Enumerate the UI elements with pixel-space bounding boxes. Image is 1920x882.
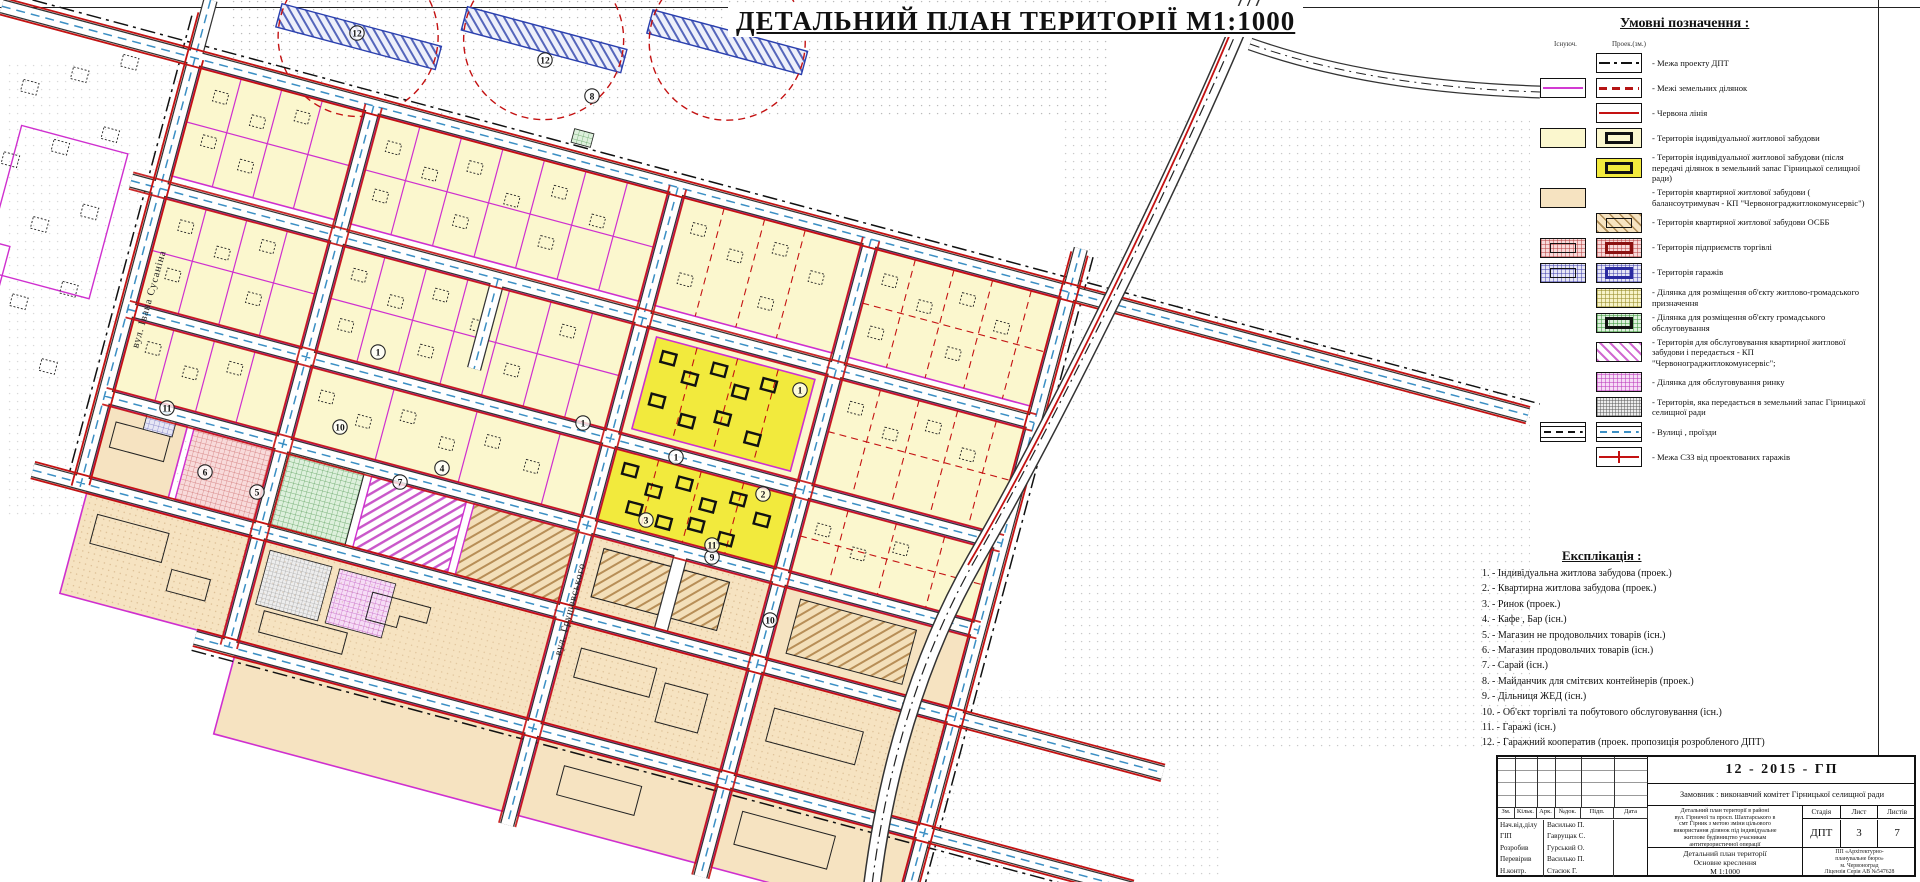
drawing-name: Детальний план території Основне креслен… — [1648, 848, 1803, 877]
title-block: Зм.Кільк.Арк.№док.Підп.Дата Нач.від.ділу… — [1496, 755, 1916, 877]
map-number-1: 1 — [371, 345, 385, 359]
legend-item-label: - Територія індивідуальної житлової забу… — [1652, 133, 1870, 144]
legend-item-label: - Територія гаражів — [1652, 267, 1870, 278]
legend-item-label: - Територія квартирної житлової забудови… — [1652, 217, 1870, 228]
svg-text:2: 2 — [761, 490, 766, 500]
svg-text:6: 6 — [203, 468, 208, 478]
legend-item: - Межі земельних ділянок — [1540, 77, 1878, 99]
project-description: Детальний план території в районі вул. Г… — [1648, 806, 1803, 847]
revision-col-2: Арк. — [1537, 808, 1555, 818]
legend-item: - Територія квартирної житлової забудови… — [1540, 212, 1878, 234]
svg-text:1: 1 — [674, 453, 679, 463]
explication-item: 8. - Майданчик для смітєвих контейнерів … — [1482, 674, 1902, 689]
legend-swatch-yellow — [1596, 128, 1642, 148]
explication-item: 3. - Ринок (проек.) — [1482, 597, 1902, 612]
legend-swatch-yellow — [1540, 128, 1586, 148]
legend-item: - Територія для обслуговування квартирно… — [1540, 337, 1878, 369]
legend-swatch-green-grid — [1596, 313, 1642, 333]
legend-item: - Ділянка для розміщення об'єкту житлово… — [1540, 287, 1878, 309]
revision-col-4: Підп. — [1581, 808, 1614, 818]
legend-item-label: - Територія квартирної житлової забудови… — [1652, 187, 1870, 208]
document-code: 12 - 2015 - ГП — [1648, 757, 1916, 784]
map-number-1: 1 — [576, 416, 590, 430]
svg-text:1: 1 — [581, 419, 586, 429]
legend-swatch-tan-hatch — [1596, 213, 1642, 233]
legend-item: - Вулиці , проїзди — [1540, 421, 1878, 443]
svg-text:1: 1 — [798, 386, 803, 396]
signature-role: Розробив — [1498, 843, 1544, 854]
svg-text:10: 10 — [765, 616, 775, 626]
map-number-1: 1 — [793, 383, 807, 397]
revision-col-5: Дата — [1614, 808, 1648, 818]
explication-item: 5. - Магазин не продовольчих товарів (іс… — [1482, 628, 1902, 643]
legend-swatch-line — [1596, 53, 1642, 73]
signature-name: Гаврущак С. — [1544, 831, 1614, 842]
legend-item: - Територія, яка передається в земельний… — [1540, 396, 1878, 418]
legend-item: - Територія індивідуальної житлової забу… — [1540, 152, 1878, 184]
legend-swatch-magenta-grid — [1596, 372, 1642, 392]
svg-text:7: 7 — [398, 478, 403, 488]
explication-item: 6. - Магазин продовольчих товарів (існ.) — [1482, 643, 1902, 658]
stage-sheet-cells: Стадія Лист Листів ДПТ 3 7 — [1803, 806, 1916, 847]
legend-col-projected: Проек.(зм.) — [1612, 40, 1646, 48]
legend-item-label: - Ділянка для розміщення об'єкту громадс… — [1652, 312, 1870, 333]
legend-swatch-line — [1540, 78, 1586, 98]
map-number-5: 5 — [250, 485, 264, 499]
map-area: .blk-y{fill:#FBF7CE;stroke:#cf2fcf;strok… — [0, 0, 1540, 882]
legend-item-label: - Територія, яка передається в земельний… — [1652, 397, 1870, 418]
map-number-12: 12 — [350, 26, 364, 40]
legend-item-label: - Територія індивідуальної житлової забу… — [1652, 152, 1870, 184]
legend-item: - Межа проекту ДПТ — [1540, 52, 1878, 74]
legend-items: - Межа проекту ДПТ- Межі земельних ділян… — [1540, 52, 1878, 471]
signature-role: Н.контр. — [1498, 866, 1544, 877]
title-block-main: 12 - 2015 - ГП Замовник : виконавчий ком… — [1648, 757, 1916, 875]
sheet-label: Лист — [1841, 806, 1879, 819]
map-number-4: 4 — [435, 461, 449, 475]
signature-row: ГІПГаврущак С. — [1498, 831, 1648, 842]
legend-swatch-blue-grid — [1596, 263, 1642, 283]
legend-item-label: - Межа СЗЗ від проектованих гаражів — [1652, 452, 1870, 463]
explication-heading: Експлікація : — [1562, 548, 1642, 564]
legend-col-existing: Існуюч. — [1554, 40, 1577, 48]
explication-item: 11. - Гаражі (існ.) — [1482, 720, 1902, 735]
signature-row: Н.контр.Стасюк Г. — [1498, 866, 1648, 877]
svg-text:1: 1 — [376, 348, 381, 358]
legend-swatch-road-ex — [1540, 422, 1586, 442]
legend-item: - Ділянка для обслуговування ринку — [1540, 371, 1878, 393]
explication-item: 1. - Індивідуальна житлова забудова (про… — [1482, 566, 1902, 581]
signature-name: Василько П. — [1544, 820, 1614, 831]
title-block-signatures: Зм.Кільк.Арк.№док.Підп.Дата Нач.від.ділу… — [1498, 757, 1648, 875]
sheets-label: Листів — [1878, 806, 1916, 819]
signature-role: Нач.від.ділу — [1498, 820, 1544, 831]
map-number-1: 1 — [669, 450, 683, 464]
svg-text:5: 5 — [255, 488, 260, 498]
legend-swatch-blue-grid — [1540, 263, 1586, 283]
explication-item: 12. - Гаражний кооператив (проек. пропоз… — [1482, 735, 1902, 750]
customer-line: Замовник : виконавчий комітет Гірницької… — [1648, 784, 1916, 806]
legend-swatch-pink-grid — [1596, 238, 1642, 258]
sheets-value: 7 — [1878, 820, 1916, 847]
signature-rows: Нач.від.ділуВасилько П.ГІПГаврущак С.Роз… — [1498, 820, 1648, 877]
explication-item: 4. - Кафе , Бар (існ.) — [1482, 612, 1902, 627]
map-number-10: 10 — [763, 613, 777, 627]
legend-item: - Ділянка для розміщення об'єкту громадс… — [1540, 312, 1878, 334]
legend-item: - Межа СЗЗ від проектованих гаражів — [1540, 446, 1878, 468]
plan-sheet: .blk-y{fill:#FBF7CE;stroke:#cf2fcf;strok… — [0, 0, 1920, 882]
legend-item: - Червона лінія — [1540, 102, 1878, 124]
sheet-frame-rightline — [1878, 0, 1879, 756]
svg-text:11: 11 — [163, 404, 172, 414]
legend-swatch-road-pr — [1596, 422, 1642, 442]
revision-col-3: №док. — [1555, 808, 1581, 818]
legend-swatch-gray-grid — [1596, 397, 1642, 417]
svg-text:11: 11 — [708, 541, 717, 551]
signature-row: РозробивГурський О. — [1498, 843, 1648, 854]
legend-swatch-line — [1596, 103, 1642, 123]
legend-swatch-purple-hatch — [1596, 342, 1642, 362]
revision-col-0: Зм. — [1498, 808, 1515, 818]
svg-text:12: 12 — [352, 29, 362, 39]
revision-grid — [1498, 757, 1648, 807]
explication-item: 9. - Дільниця ЖЕД (існ.) — [1482, 689, 1902, 704]
legend-swatch-bright-yellow — [1596, 158, 1642, 178]
legend-item-label: - Територія підприємств торгівлі — [1652, 242, 1870, 253]
signature-role: ГІП — [1498, 831, 1544, 842]
legend-swatch-line — [1596, 78, 1642, 98]
map-number-11: 11 — [705, 538, 719, 552]
legend-item-label: - Територія для обслуговування квартирно… — [1652, 337, 1870, 369]
explication-items: 1. - Індивідуальна житлова забудова (про… — [1482, 566, 1902, 751]
svg-text:8: 8 — [590, 92, 595, 102]
svg-text:9: 9 — [710, 553, 715, 563]
map-number-3: 3 — [639, 513, 653, 527]
legend-swatch-pink-grid — [1540, 238, 1586, 258]
sheet-value: 3 — [1841, 820, 1879, 847]
legend-item-label: - Межа проекту ДПТ — [1652, 58, 1870, 69]
legend-item-label: - Ділянка для розміщення об'єкту житлово… — [1652, 287, 1870, 308]
signature-name: Гурський О. — [1544, 843, 1614, 854]
svg-text:4: 4 — [440, 464, 445, 474]
legend-item-label: - Межі земельних ділянок — [1652, 83, 1870, 94]
organization-info: ПП «Архітектурно- планувальне бюро» м. Ч… — [1803, 848, 1916, 878]
legend-item-label: - Червона лінія — [1652, 108, 1870, 119]
map-number-10: 10 — [333, 420, 347, 434]
signature-role: Перевірив — [1498, 854, 1544, 865]
map-number-7: 7 — [393, 475, 407, 489]
explication-item: 10. - Об'єкт торгівлі та побутового обсл… — [1482, 705, 1902, 720]
revision-column-headers: Зм.Кільк.Арк.№док.Підп.Дата — [1498, 807, 1648, 819]
explication-item: 2. - Квартирна житлова забудова (проек.) — [1482, 581, 1902, 596]
legend-item-label: - Вулиці , проїзди — [1652, 427, 1870, 438]
map-number-2: 2 — [756, 487, 770, 501]
svg-text:12: 12 — [540, 56, 550, 66]
map-drawing: .blk-y{fill:#FBF7CE;stroke:#cf2fcf;strok… — [0, 0, 1540, 882]
stage-label: Стадія — [1803, 806, 1841, 819]
map-number-12: 12 — [538, 53, 552, 67]
legend-swatch-line — [1596, 447, 1642, 467]
legend-item: - Територія індивідуальної житлової забу… — [1540, 127, 1878, 149]
dots-texture-right — [1060, 120, 1530, 750]
legend-panel: Умовні позначення : Існуюч. Проек.(зм.) … — [1540, 0, 1878, 882]
svg-text:10: 10 — [335, 423, 345, 433]
map-number-11: 11 — [160, 401, 174, 415]
signature-row: Нач.від.ділуВасилько П. — [1498, 820, 1648, 831]
legend-heading: Умовні позначення : — [1620, 16, 1749, 32]
signature-name: Стасюк Г. — [1544, 866, 1614, 877]
legend-item: - Територія квартирної житлової забудови… — [1540, 187, 1878, 209]
stage-value: ДПТ — [1803, 820, 1841, 847]
signature-row: ПеревіривВасилько П. — [1498, 854, 1648, 865]
map-number-6: 6 — [198, 465, 212, 479]
legend-swatch-tan — [1540, 188, 1586, 208]
svg-text:3: 3 — [644, 516, 649, 526]
legend-item-label: - Ділянка для обслуговування ринку — [1652, 377, 1870, 388]
page-title: ДЕТАЛЬНИЙ ПЛАН ТЕРИТОРІЇ М1:1000 — [728, 6, 1303, 37]
revision-col-1: Кільк. — [1515, 808, 1537, 818]
explication-item: 7. - Сарай (існ.) — [1482, 658, 1902, 673]
legend-swatch-yellow-grid — [1596, 288, 1642, 308]
legend-item: - Територія підприємств торгівлі — [1540, 237, 1878, 259]
map-number-8: 8 — [585, 89, 599, 103]
legend-item: - Територія гаражів — [1540, 262, 1878, 284]
signature-name: Василько П. — [1544, 854, 1614, 865]
